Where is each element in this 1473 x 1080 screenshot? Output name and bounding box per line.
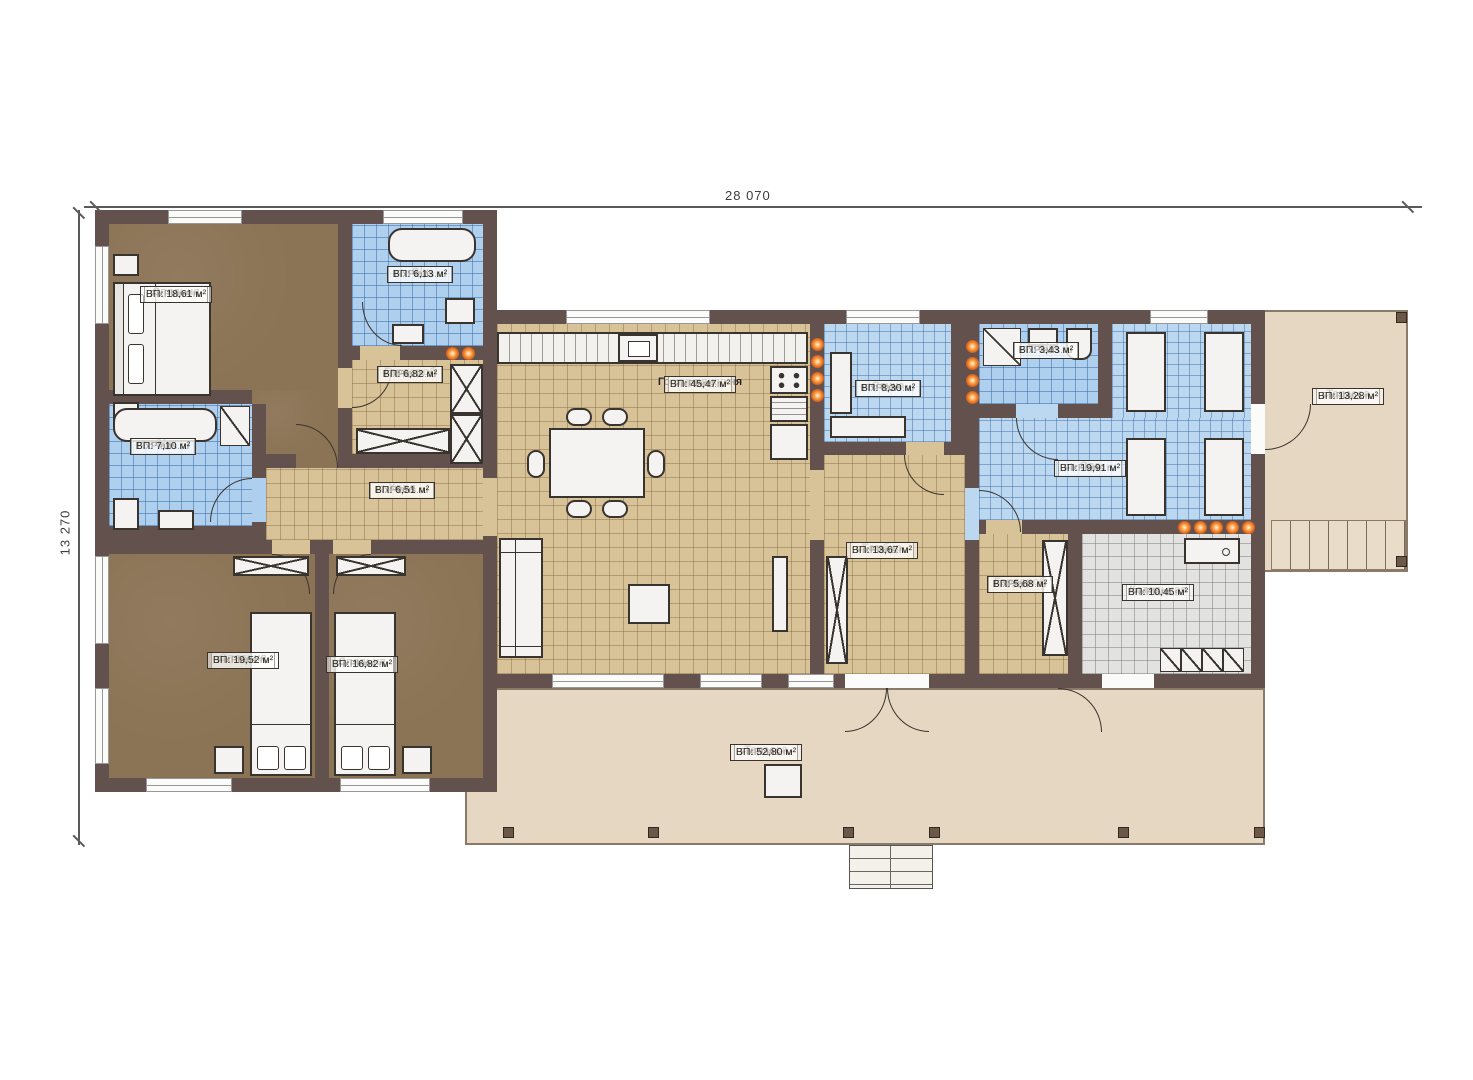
- room-area: ВП: 52,80 м²: [730, 744, 802, 761]
- dresser: [233, 556, 309, 576]
- wall-light-icon: [811, 338, 824, 351]
- room-area: ВП: 19,91 м²: [1054, 460, 1126, 477]
- wall: [1068, 534, 1082, 674]
- room-hall-floor: [252, 468, 483, 540]
- sink: [158, 510, 194, 530]
- wall-light-icon: [966, 340, 979, 353]
- sofa: [499, 538, 543, 658]
- door-opening: [1102, 674, 1154, 688]
- room-area: ВП: 8,30 м²: [855, 380, 921, 397]
- toilet: [113, 498, 139, 530]
- dining-table: [549, 428, 645, 498]
- terrace-post: [843, 827, 854, 838]
- window: [168, 210, 242, 224]
- dimension-line-top: [84, 206, 1422, 208]
- wall: [252, 454, 296, 468]
- kitchen-sink: [618, 334, 658, 362]
- window: [566, 310, 710, 324]
- room-area: ВП: 13,67 м²: [846, 542, 918, 559]
- wall-light-icon: [1178, 521, 1191, 534]
- bed: [334, 612, 396, 776]
- stairs-step: [1181, 648, 1202, 672]
- wall-light-icon: [811, 355, 824, 368]
- nightstand: [113, 254, 139, 276]
- stairs-step: [1202, 648, 1223, 672]
- fridge: [770, 424, 808, 460]
- door-opening: [272, 540, 310, 554]
- terrace-post: [1396, 312, 1407, 323]
- sauna-bench: [830, 352, 852, 414]
- room-area: ВП: 3,43 м²: [1013, 342, 1079, 359]
- wardrobe-cabinet: [450, 414, 483, 464]
- wall-light-icon: [1194, 521, 1207, 534]
- wall-light-icon: [1226, 521, 1239, 534]
- chair: [647, 450, 665, 478]
- terrace-post: [503, 827, 514, 838]
- door-opening: [906, 442, 944, 455]
- bathtub: [113, 408, 217, 442]
- room-area: ВП: 45,47 м²: [664, 376, 736, 393]
- stairs-step: [1160, 648, 1181, 672]
- spa-lounger: [1204, 438, 1244, 516]
- nightstand: [402, 746, 432, 774]
- dimension-width: 28 070: [725, 188, 771, 203]
- window: [95, 246, 109, 324]
- tv-console: [772, 556, 788, 632]
- room-area: ВП: 6,51 м²: [369, 482, 435, 499]
- door-opening: [483, 478, 497, 536]
- window: [95, 688, 109, 764]
- wall-light-icon: [1242, 521, 1255, 534]
- room-area: ВП: 18,61 м²: [140, 286, 212, 303]
- window: [552, 674, 664, 688]
- wall-light-icon: [966, 374, 979, 387]
- entrance-steps: [849, 845, 933, 889]
- room-area: ВП: 19,52 м²: [207, 652, 279, 669]
- door-opening: [360, 346, 400, 360]
- terrace-right-steps: [1271, 520, 1406, 570]
- terrace-post: [929, 827, 940, 838]
- terrace-post: [1254, 827, 1265, 838]
- stairs-step: [1223, 648, 1244, 672]
- window: [846, 310, 920, 324]
- spa-lounger: [1126, 332, 1166, 412]
- dresser: [336, 556, 406, 576]
- door-opening: [338, 368, 352, 408]
- wall-light-icon: [446, 347, 459, 360]
- room-area: ВП: 13,28 м²: [1312, 388, 1384, 405]
- chair: [602, 500, 628, 518]
- wardrobe-cabinet: [1042, 540, 1068, 656]
- bed: [250, 612, 312, 776]
- wardrobe-cabinet: [450, 364, 483, 414]
- room-area: ВП: 16,82 м²: [326, 656, 398, 673]
- window: [700, 674, 762, 688]
- chair: [602, 408, 628, 426]
- door-opening: [333, 540, 371, 554]
- door-opening: [965, 488, 979, 540]
- washing-machine: [445, 298, 475, 324]
- room-area: ВП: 6,82 м²: [377, 366, 443, 383]
- window: [146, 778, 232, 792]
- stove: [770, 366, 808, 394]
- room-area: ВП: 10,45 м²: [1122, 584, 1194, 601]
- wall: [1098, 324, 1112, 418]
- window: [788, 674, 834, 688]
- chair: [566, 500, 592, 518]
- shower-tray: [220, 406, 250, 446]
- wardrobe-cabinet: [826, 556, 848, 664]
- terrace-post: [1118, 827, 1129, 838]
- window: [1150, 310, 1208, 324]
- door-opening: [252, 478, 266, 522]
- door-opening: [1016, 404, 1058, 418]
- chair: [566, 408, 592, 426]
- spa-lounger: [1204, 332, 1244, 412]
- wall-light-icon: [966, 391, 979, 404]
- wall-light-icon: [1210, 521, 1223, 534]
- dimension-height: 13 270: [57, 510, 72, 556]
- chair: [527, 450, 545, 478]
- wall: [338, 224, 352, 468]
- oven: [770, 396, 808, 422]
- door-opening: [810, 470, 824, 540]
- wall-light-icon: [966, 357, 979, 370]
- coffee-table: [628, 584, 670, 624]
- spa-lounger: [1126, 438, 1166, 516]
- toilet: [392, 324, 424, 344]
- sauna-bench: [830, 416, 906, 438]
- nightstand: [214, 746, 244, 774]
- dimension-line-left: [78, 210, 80, 845]
- terrace-post: [648, 827, 659, 838]
- window: [340, 778, 430, 792]
- bathtub: [388, 228, 476, 262]
- wall-light-icon: [811, 389, 824, 402]
- terrace-table: [764, 764, 802, 798]
- window: [383, 210, 463, 224]
- door-opening: [1251, 404, 1265, 454]
- wall-light-icon: [462, 347, 475, 360]
- room-area: ВП: 5,68 м²: [987, 576, 1053, 593]
- window: [95, 556, 109, 644]
- room-area: ВП: 6,13 м²: [387, 266, 453, 283]
- terrace-post: [1396, 556, 1407, 567]
- room-area: ВП: 7,10 м²: [130, 438, 196, 455]
- wall-light-icon: [811, 372, 824, 385]
- door-opening: [845, 674, 929, 688]
- wardrobe-cabinet: [356, 428, 450, 454]
- wall: [951, 324, 965, 455]
- floor-plan: Спальня FixPlans.ru ВП: 18,61 м² С/у Fix…: [0, 0, 1473, 1080]
- boiler-counter: [1184, 538, 1240, 564]
